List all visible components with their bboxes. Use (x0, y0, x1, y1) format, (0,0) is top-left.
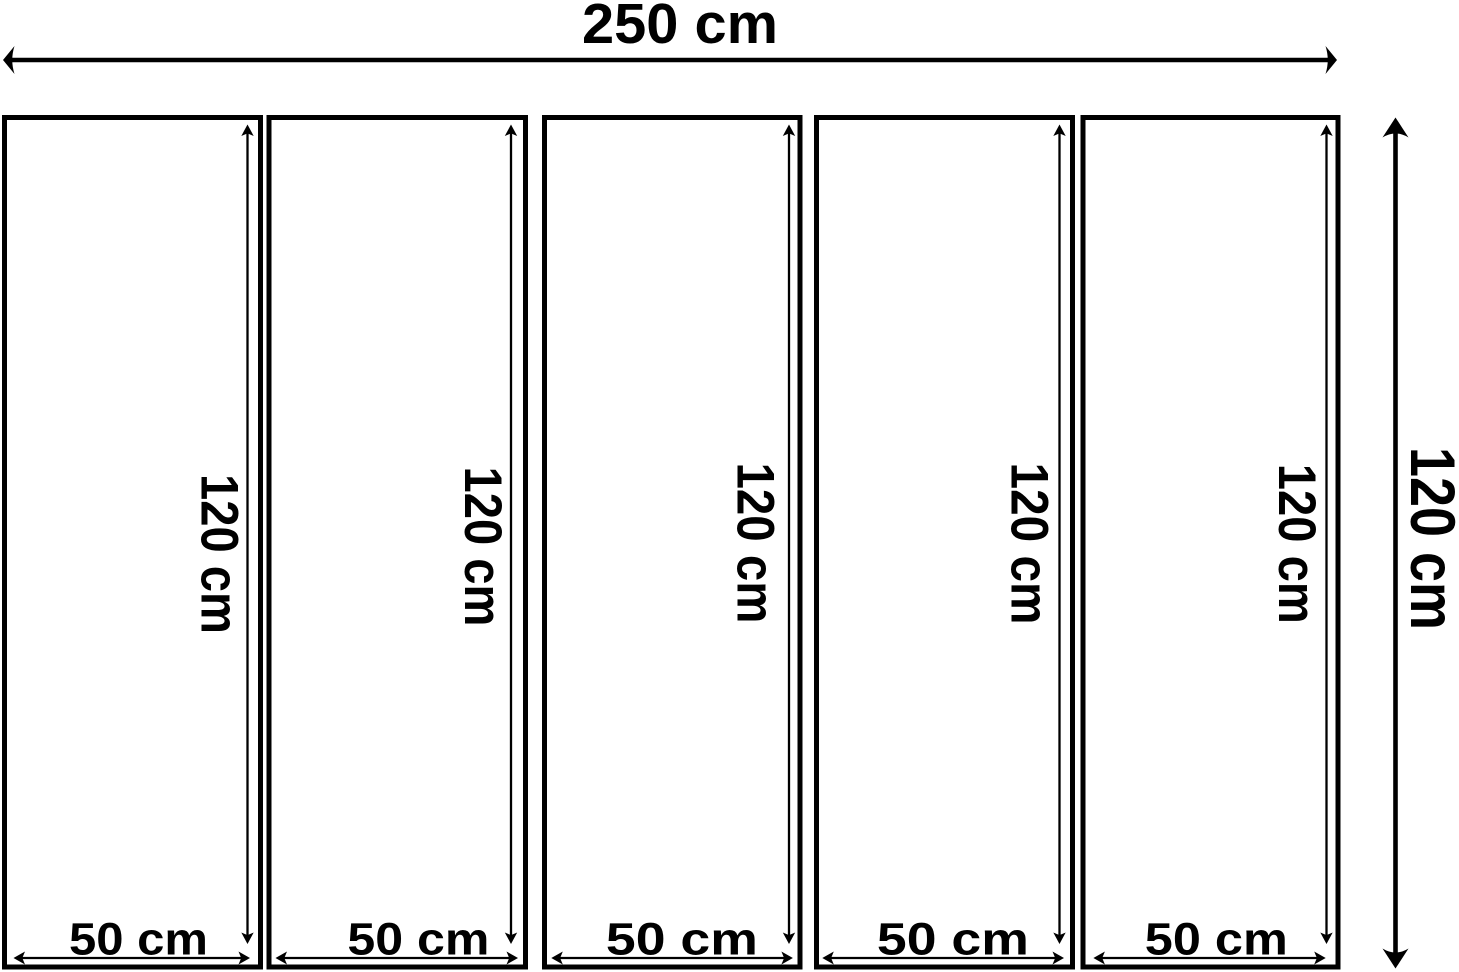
svg-text:120 cm: 120 cm (1397, 447, 1459, 630)
svg-text:50 cm: 50 cm (877, 914, 1029, 965)
svg-text:50 cm: 50 cm (606, 914, 758, 965)
svg-text:120 cm: 120 cm (726, 463, 785, 624)
svg-text:50 cm: 50 cm (69, 914, 208, 965)
svg-text:120 cm: 120 cm (1267, 464, 1326, 624)
svg-text:50 cm: 50 cm (347, 914, 489, 965)
svg-text:120 cm: 120 cm (453, 467, 512, 627)
svg-text:250 cm: 250 cm (582, 0, 778, 56)
svg-text:50 cm: 50 cm (1145, 914, 1288, 965)
svg-text:120 cm: 120 cm (1000, 463, 1059, 625)
svg-text:120 cm: 120 cm (190, 474, 249, 634)
